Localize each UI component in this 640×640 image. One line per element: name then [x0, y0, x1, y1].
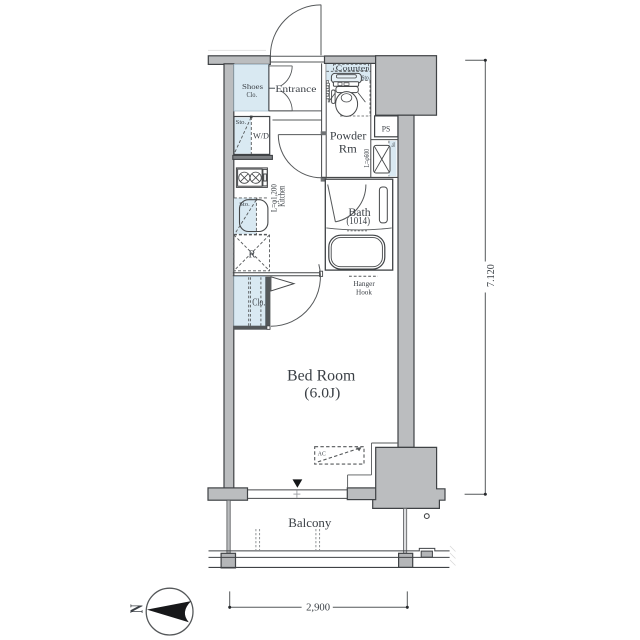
svg-text:Sto.: Sto.	[362, 76, 371, 82]
svg-text:Hook: Hook	[356, 288, 372, 297]
svg-text:PS: PS	[382, 124, 391, 133]
svg-text:Bed Room: Bed Room	[287, 368, 356, 385]
svg-text:Entrance: Entrance	[275, 85, 316, 95]
svg-text:Clo.: Clo.	[252, 297, 265, 308]
svg-text:Sto.: Sto.	[239, 202, 250, 208]
svg-text:N: N	[128, 604, 148, 613]
svg-text:AC: AC	[318, 451, 326, 458]
svg-text:Counter: Counter	[336, 65, 370, 72]
svg-text:Rm: Rm	[339, 141, 357, 155]
svg-text:2,900: 2,900	[306, 602, 330, 613]
svg-text:L=φ600: L=φ600	[363, 148, 371, 167]
svg-text:Sto.: Sto.	[392, 142, 397, 148]
svg-text:Kitchen: Kitchen	[277, 185, 287, 206]
svg-text:7.120: 7.120	[486, 264, 497, 287]
svg-text:(1014): (1014)	[346, 216, 370, 227]
svg-text:W/D: W/D	[253, 130, 269, 140]
svg-text:Clo.: Clo.	[247, 91, 258, 99]
svg-text:Shoes: Shoes	[242, 83, 263, 91]
svg-text:(6.0J): (6.0J)	[304, 386, 340, 402]
svg-text:R: R	[248, 250, 255, 261]
svg-text:Balcony: Balcony	[288, 516, 332, 530]
svg-text:Sto.: Sto.	[236, 120, 247, 126]
